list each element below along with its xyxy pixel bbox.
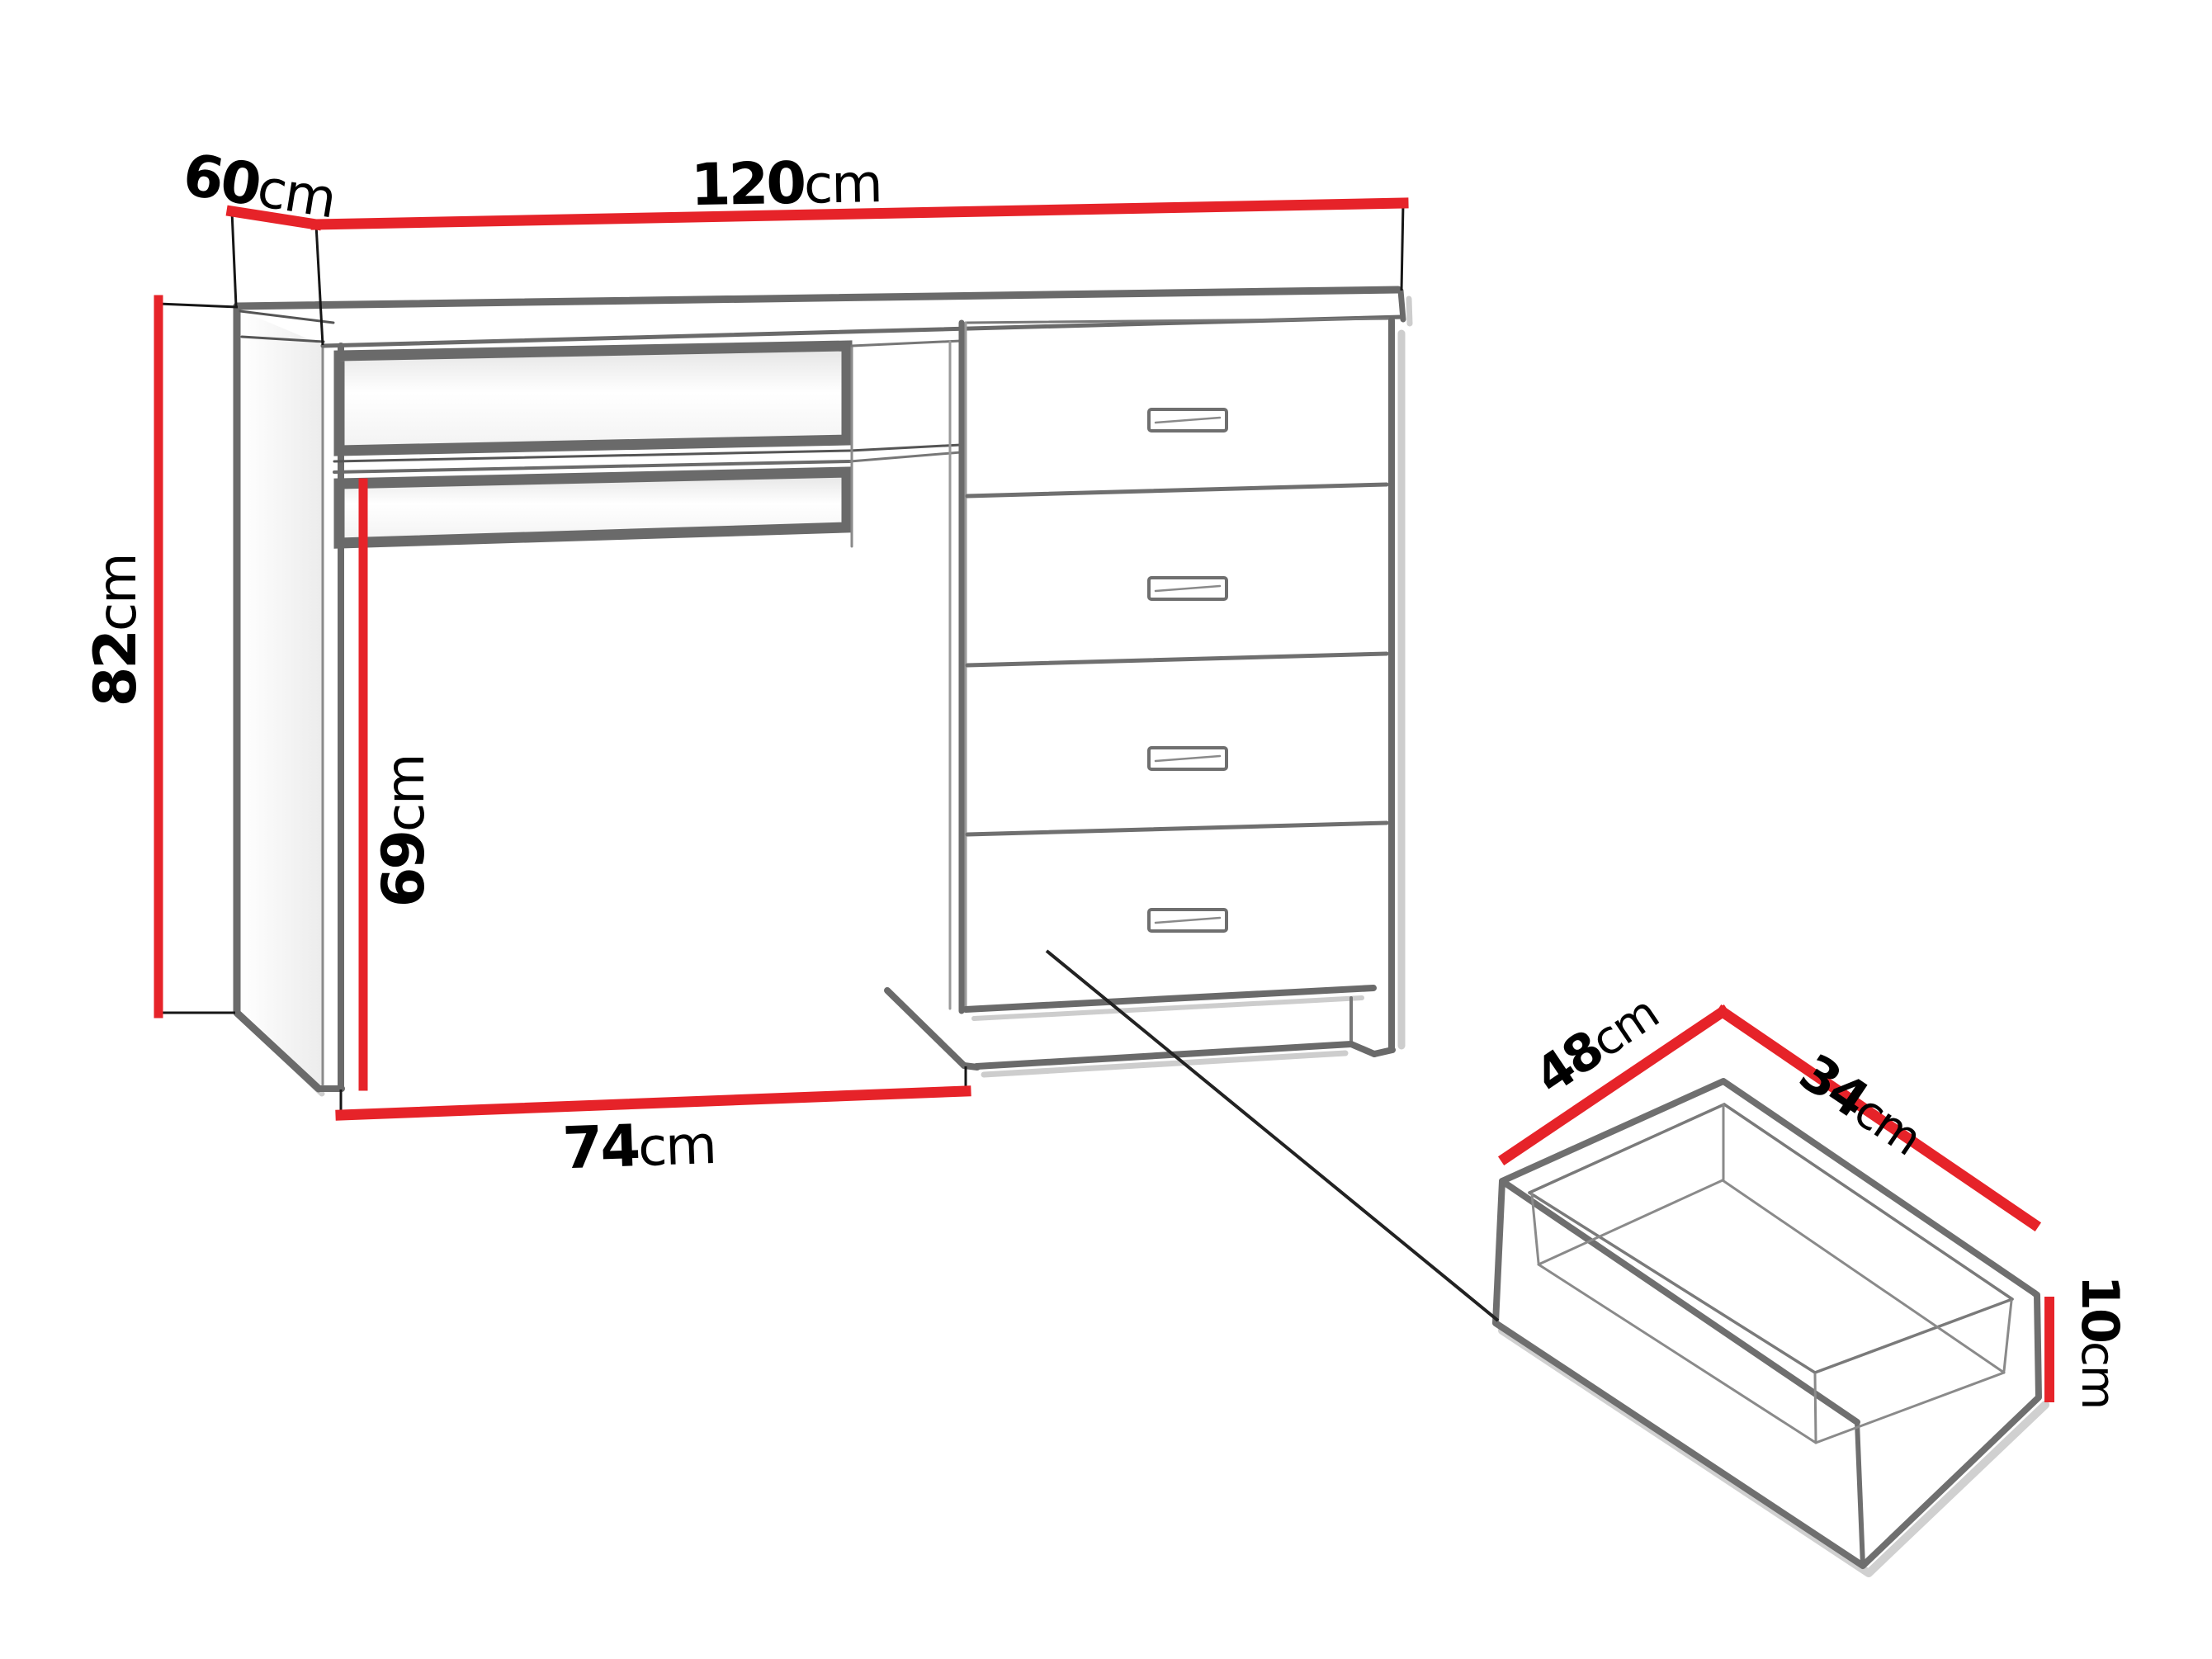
- dim-label-drawer-height: 10 cm: [2070, 1275, 2130, 1409]
- desk-width-unit: cm: [803, 154, 881, 216]
- knee-width-value: 74: [561, 1112, 640, 1182]
- dim-label-knee-height: 69 cm: [370, 754, 437, 907]
- desk-height-unit: cm: [87, 554, 149, 631]
- knee-height-unit: cm: [376, 754, 437, 832]
- niche-opening: [339, 346, 847, 451]
- desk-depth-value: 60: [178, 140, 263, 219]
- dimension-diagram: 120 cm 60 cm 82 cm 69 cm 74 cm 48 cm 34 …: [0, 0, 2212, 1659]
- left-panel-face: [240, 310, 323, 1087]
- shadow-top-cap: [1409, 299, 1410, 324]
- lower-slot-opening: [339, 472, 847, 543]
- desk-depth-unit: cm: [253, 158, 339, 231]
- desk-drawing: [237, 290, 1410, 1094]
- drawer-divider-2: [967, 654, 1387, 665]
- drawer-height-value: 10: [2070, 1275, 2130, 1342]
- drawer-height-unit: cm: [2071, 1341, 2125, 1408]
- drawer-leader-line: [1047, 951, 1498, 1321]
- knee-width-unit: cm: [637, 1115, 716, 1179]
- tick-depth-back: [232, 211, 236, 306]
- desk-height-value: 82: [82, 631, 149, 707]
- corner-front: [1815, 1374, 1816, 1441]
- divider-bottom-bevel: [887, 990, 964, 1066]
- dim-line-knee-width: [341, 1091, 966, 1115]
- dim-label-desk-height: 82 cm: [82, 554, 149, 707]
- desktop-right-cap: [1401, 291, 1403, 319]
- desktop-back-edge: [237, 290, 1398, 306]
- tick-depth-front: [316, 225, 323, 345]
- plinth-right-step: [1351, 1044, 1374, 1054]
- dim-label-desk-depth: 60 cm: [178, 140, 340, 231]
- drawer-handle-lines: [1156, 418, 1220, 923]
- dim-label-drawer-depth: 48 cm: [1524, 981, 1668, 1106]
- shelf-right-bottom-taper: [850, 452, 961, 461]
- dim-label-desk-width: 120 cm: [690, 148, 881, 219]
- drawer-divider-3: [967, 823, 1387, 834]
- shelf-right-top-taper: [850, 445, 961, 451]
- drawer-box-drawing: [1496, 1081, 2045, 1573]
- dimension-diagram-page: 120 cm 60 cm 82 cm 69 cm 74 cm 48 cm 34 …: [0, 0, 2212, 1659]
- knee-height-value: 69: [370, 832, 437, 907]
- right-foot-edge: [1374, 1050, 1392, 1054]
- dim-label-knee-width: 74 cm: [561, 1109, 716, 1182]
- divider-column-top-edge: [852, 341, 961, 346]
- desk-width-value: 120: [690, 149, 805, 219]
- tick-width-right: [1401, 203, 1403, 291]
- tick-height-top: [158, 304, 238, 307]
- drawer-divider-1: [967, 484, 1387, 496]
